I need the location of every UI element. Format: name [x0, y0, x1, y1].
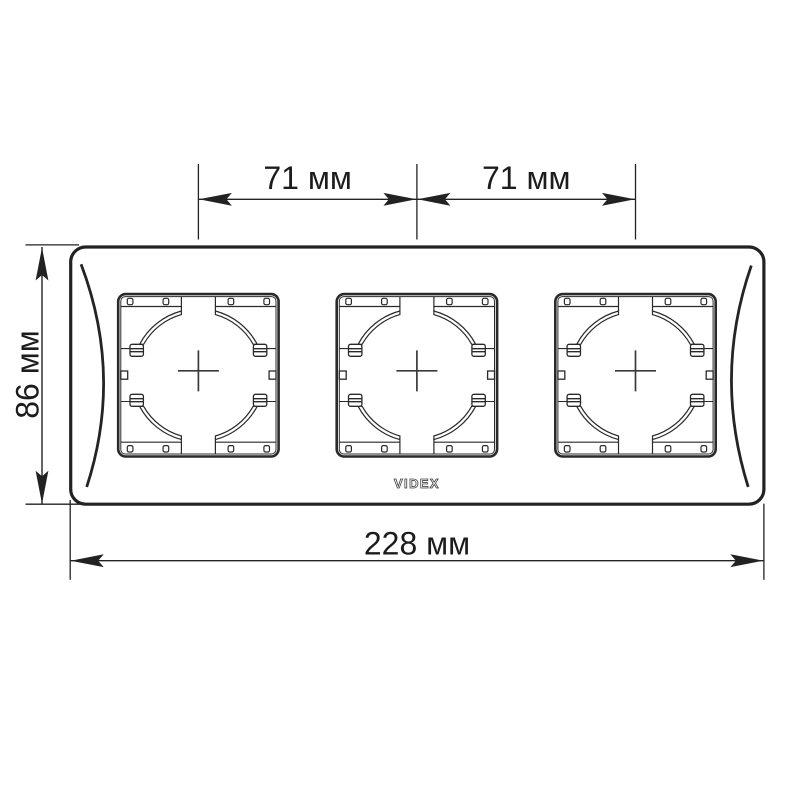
svg-text:VIDEX: VIDEX [394, 476, 440, 491]
svg-text:71 мм: 71 мм [263, 160, 351, 196]
svg-text:228 мм: 228 мм [364, 526, 470, 562]
svg-text:71 мм: 71 мм [482, 160, 570, 196]
svg-text:86 мм: 86 мм [9, 330, 45, 418]
